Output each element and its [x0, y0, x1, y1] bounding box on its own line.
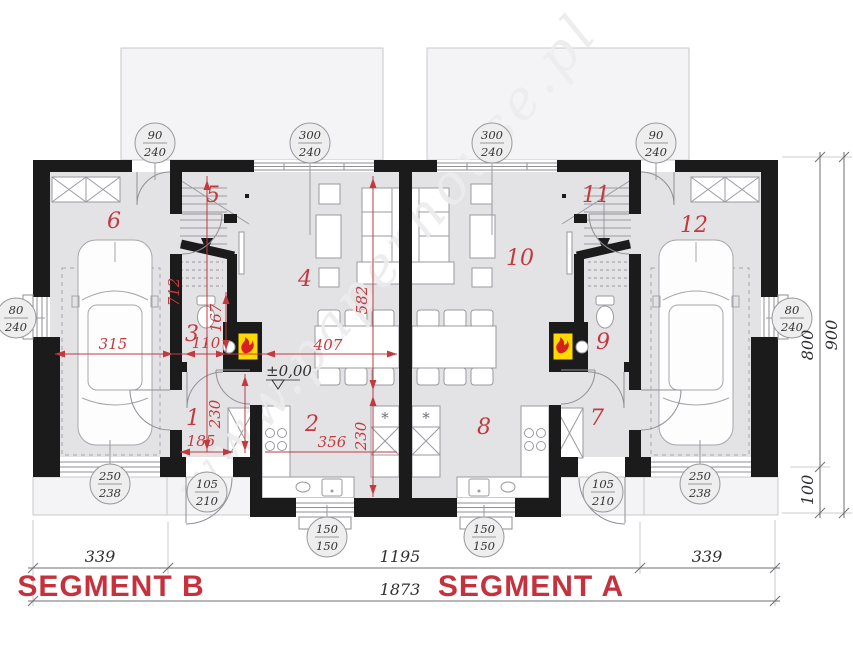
svg-text:150: 150	[473, 539, 495, 553]
room-number-7: 7	[590, 406, 604, 431]
dim-185: 185	[187, 432, 216, 450]
room-number-8: 8	[477, 415, 491, 440]
svg-text:250: 250	[688, 469, 711, 483]
dim-seg-a-width: 339	[692, 547, 723, 566]
dining-set-a	[412, 310, 496, 385]
room-number-5: 5	[206, 183, 220, 208]
dim-depth-front: 100	[798, 475, 817, 506]
dim-407: 407	[313, 336, 343, 354]
svg-text:105: 105	[196, 477, 218, 491]
floor-plan-drawing: www.paperhouse.pl	[0, 0, 853, 648]
room-number-4: 4	[297, 267, 312, 292]
svg-text:238: 238	[98, 486, 121, 500]
washbasin-a	[576, 341, 588, 353]
toilet-a	[596, 296, 614, 328]
room-number-11: 11	[582, 183, 610, 208]
svg-text:90: 90	[148, 128, 163, 142]
dim-230-kitchen: 230	[352, 421, 370, 451]
segment-a-label: SEGMENT A	[438, 570, 624, 603]
svg-text:300: 300	[299, 128, 321, 142]
room-number-12: 12	[680, 213, 708, 238]
svg-text:150: 150	[316, 522, 338, 536]
dim-seg-b-width: 339	[85, 547, 116, 566]
svg-text:210: 210	[591, 494, 614, 508]
dim-356: 356	[318, 433, 347, 451]
dim-315: 315	[99, 335, 128, 353]
svg-text:150: 150	[473, 522, 495, 536]
dim-110: 110	[192, 334, 221, 352]
svg-text:90: 90	[649, 128, 664, 142]
svg-text:240: 240	[298, 145, 321, 159]
svg-text:80: 80	[9, 303, 24, 317]
tall-unit-symbol-a: *	[422, 409, 430, 427]
floor-plan-page: www.paperhouse.pl	[0, 0, 853, 648]
garage-shelf-a	[691, 177, 759, 202]
svg-text:240: 240	[143, 145, 166, 159]
room-number-6: 6	[107, 209, 121, 234]
svg-text:240: 240	[644, 145, 667, 159]
dim-712: 712	[165, 278, 183, 307]
svg-text:240: 240	[480, 145, 503, 159]
svg-text:80: 80	[785, 303, 800, 317]
svg-text:210: 210	[195, 494, 218, 508]
dim-582: 582	[353, 286, 371, 315]
dim-167: 167	[207, 303, 225, 332]
level-value: ±0,00	[266, 362, 312, 380]
garage-shelf-b	[52, 177, 120, 202]
svg-text:300: 300	[481, 128, 503, 142]
svg-text:105: 105	[592, 477, 614, 491]
party-wall	[399, 160, 412, 498]
dim-center-width: 1195	[380, 547, 421, 566]
room-number-10: 10	[506, 246, 534, 271]
dim-230-hall: 230	[206, 399, 224, 429]
tall-unit-symbol-b: *	[381, 409, 389, 427]
segment-b-label: SEGMENT B	[17, 570, 204, 603]
room-number-1: 1	[186, 406, 200, 431]
svg-text:150: 150	[316, 539, 338, 553]
dim-depth-main: 800	[798, 330, 817, 361]
size-circle-entry-a: 105 210	[583, 472, 623, 512]
svg-text:240: 240	[4, 320, 27, 334]
room-number-9: 9	[596, 330, 610, 355]
svg-text:238: 238	[688, 486, 711, 500]
dim-depth-total: 900	[822, 320, 841, 351]
dim-total-width: 1873	[380, 580, 421, 599]
svg-text:250: 250	[98, 469, 121, 483]
size-circle-entry-b: 105 210	[187, 472, 227, 512]
